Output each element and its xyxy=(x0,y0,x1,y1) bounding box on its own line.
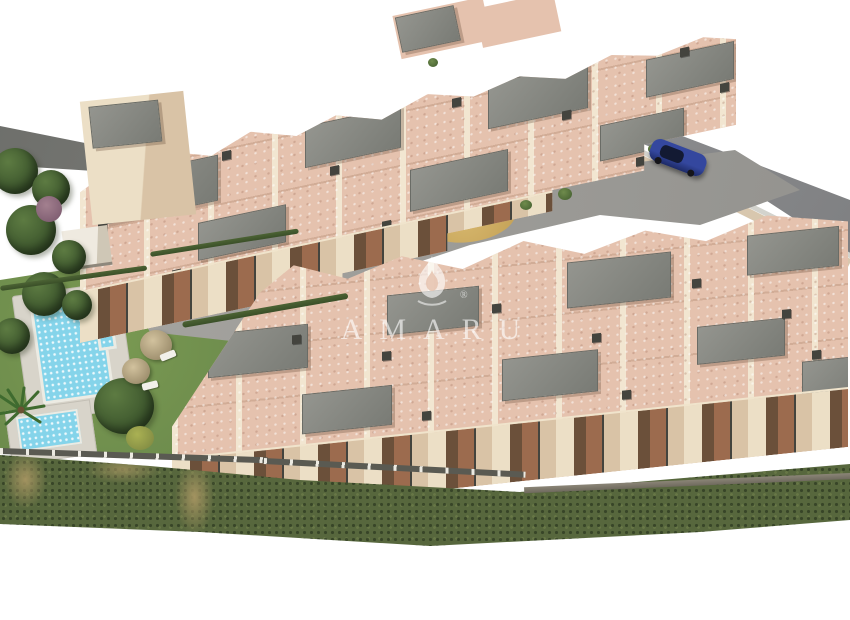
chimney xyxy=(636,156,645,167)
chimney xyxy=(812,350,821,360)
chimney xyxy=(692,278,701,288)
terrace-plant xyxy=(428,58,438,67)
flat-roof xyxy=(395,5,461,53)
chimney xyxy=(782,309,791,319)
chimney xyxy=(720,82,729,93)
chimney xyxy=(422,411,431,421)
flat-roof xyxy=(88,100,162,149)
chimney xyxy=(222,150,231,161)
courtyard-bush xyxy=(558,188,572,200)
chimney xyxy=(622,390,631,400)
garden-bush xyxy=(126,426,154,450)
courtyard-bush xyxy=(520,200,532,210)
building-block-west xyxy=(80,91,196,225)
parasol xyxy=(122,358,150,384)
flowering-bush xyxy=(36,196,62,222)
chimney xyxy=(492,303,501,313)
chimney xyxy=(592,333,601,343)
tree xyxy=(52,240,86,274)
chimney xyxy=(292,334,301,344)
chimney xyxy=(382,351,391,361)
chimney xyxy=(680,47,689,58)
aerial-render: ® AMARU xyxy=(0,0,850,620)
chimney xyxy=(452,97,461,108)
palm-tree xyxy=(0,386,48,432)
chimney xyxy=(562,110,571,121)
tree xyxy=(62,290,92,320)
building-block-top xyxy=(475,0,562,48)
car-windshield xyxy=(658,144,685,165)
chimney xyxy=(330,165,339,176)
